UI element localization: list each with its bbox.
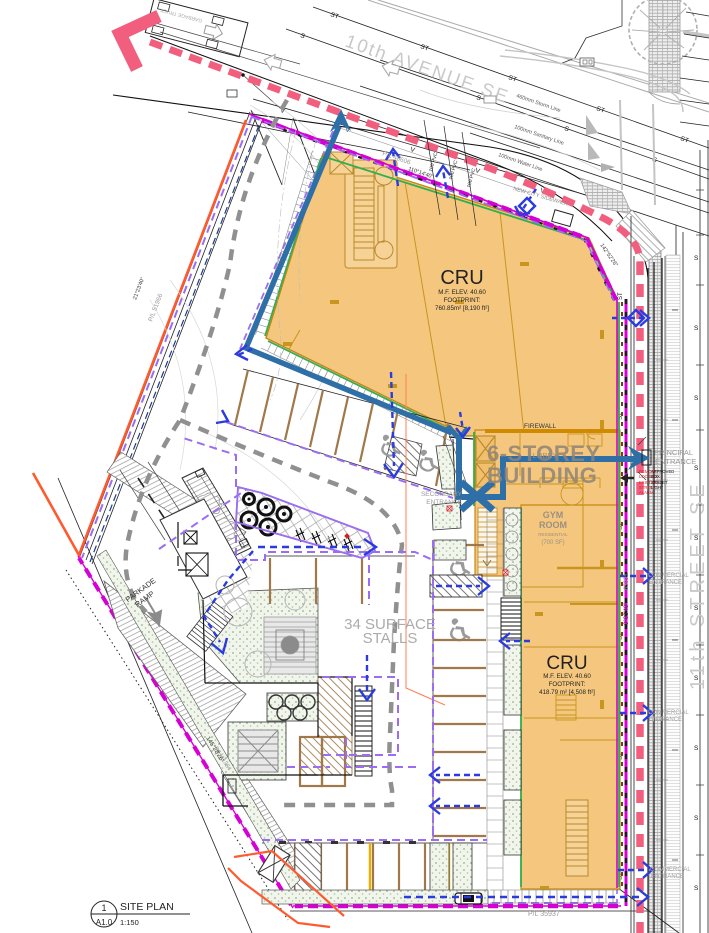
svg-text:A1.0: A1.0	[96, 918, 113, 927]
svg-text:PRINCIPAL: PRINCIPAL	[654, 448, 693, 457]
svg-text:1:150: 1:150	[120, 918, 139, 927]
svg-text:65991: 65991	[624, 573, 630, 590]
svg-text:COMMERCIAL: COMMERCIAL	[648, 710, 689, 716]
svg-text:SITE PLAN: SITE PLAN	[120, 901, 174, 913]
svg-text:(700 SF): (700 SF)	[541, 540, 564, 546]
svg-text:S: S	[694, 745, 699, 752]
svg-text:ROOM: ROOM	[539, 520, 567, 530]
svg-text:BOX: BOX	[651, 474, 660, 479]
svg-text:FIREWALL: FIREWALL	[524, 423, 557, 430]
svg-text:RESIDENTIAL: RESIDENTIAL	[538, 532, 568, 537]
svg-text:P/L 35937: P/L 35937	[528, 911, 560, 918]
svg-text:0°08'40": 0°08'40"	[624, 603, 630, 625]
svg-text:GYM: GYM	[543, 510, 564, 520]
svg-text:ST: ST	[618, 292, 624, 300]
svg-text:ALARM: ALARM	[639, 490, 654, 495]
svg-text:1: 1	[101, 903, 106, 913]
svg-text:418.79 m² [4,508 ft²]: 418.79 m² [4,508 ft²]	[539, 689, 595, 696]
svg-text:CRU: CRU	[440, 267, 483, 289]
svg-text:BUILDING: BUILDING	[487, 463, 597, 488]
svg-text:FOOTPRINT:: FOOTPRINT:	[549, 681, 586, 688]
svg-text:LOBBY: LOBBY	[532, 451, 557, 460]
svg-text:ENTRANCE: ENTRANCE	[649, 717, 682, 723]
svg-text:FOOTPRINT:: FOOTPRINT:	[444, 297, 481, 304]
svg-text:M.F. ELEV. 40.60: M.F. ELEV. 40.60	[438, 289, 486, 296]
svg-text:S: S	[694, 325, 699, 332]
svg-text:ENTRANCE: ENTRANCE	[426, 499, 462, 506]
svg-text:M.F. ELEV. 40.60: M.F. ELEV. 40.60	[543, 673, 591, 680]
svg-text:S: S	[694, 465, 699, 472]
svg-text:ENTRANCE: ENTRANCE	[649, 580, 682, 586]
svg-text:ENTRANCE: ENTRANCE	[651, 874, 684, 880]
svg-text:COMMERCIAL: COMMERCIAL	[650, 867, 691, 873]
svg-text:760.85m² [8,190 ft²]: 760.85m² [8,190 ft²]	[435, 305, 489, 312]
svg-text:ENTRANCE: ENTRANCE	[655, 457, 696, 466]
svg-text:11th STREET SE: 11th STREET SE	[687, 480, 709, 690]
svg-text:S: S	[694, 815, 699, 822]
svg-text:S: S	[694, 255, 699, 262]
svg-text:CRU: CRU	[546, 653, 587, 674]
svg-text:SECONDARY: SECONDARY	[421, 491, 463, 498]
svg-text:S: S	[694, 395, 699, 402]
svg-text:COMMERCIAL: COMMERCIAL	[648, 573, 689, 579]
svg-text:STALLS: STALLS	[363, 630, 418, 647]
svg-text:S: S	[694, 885, 699, 892]
